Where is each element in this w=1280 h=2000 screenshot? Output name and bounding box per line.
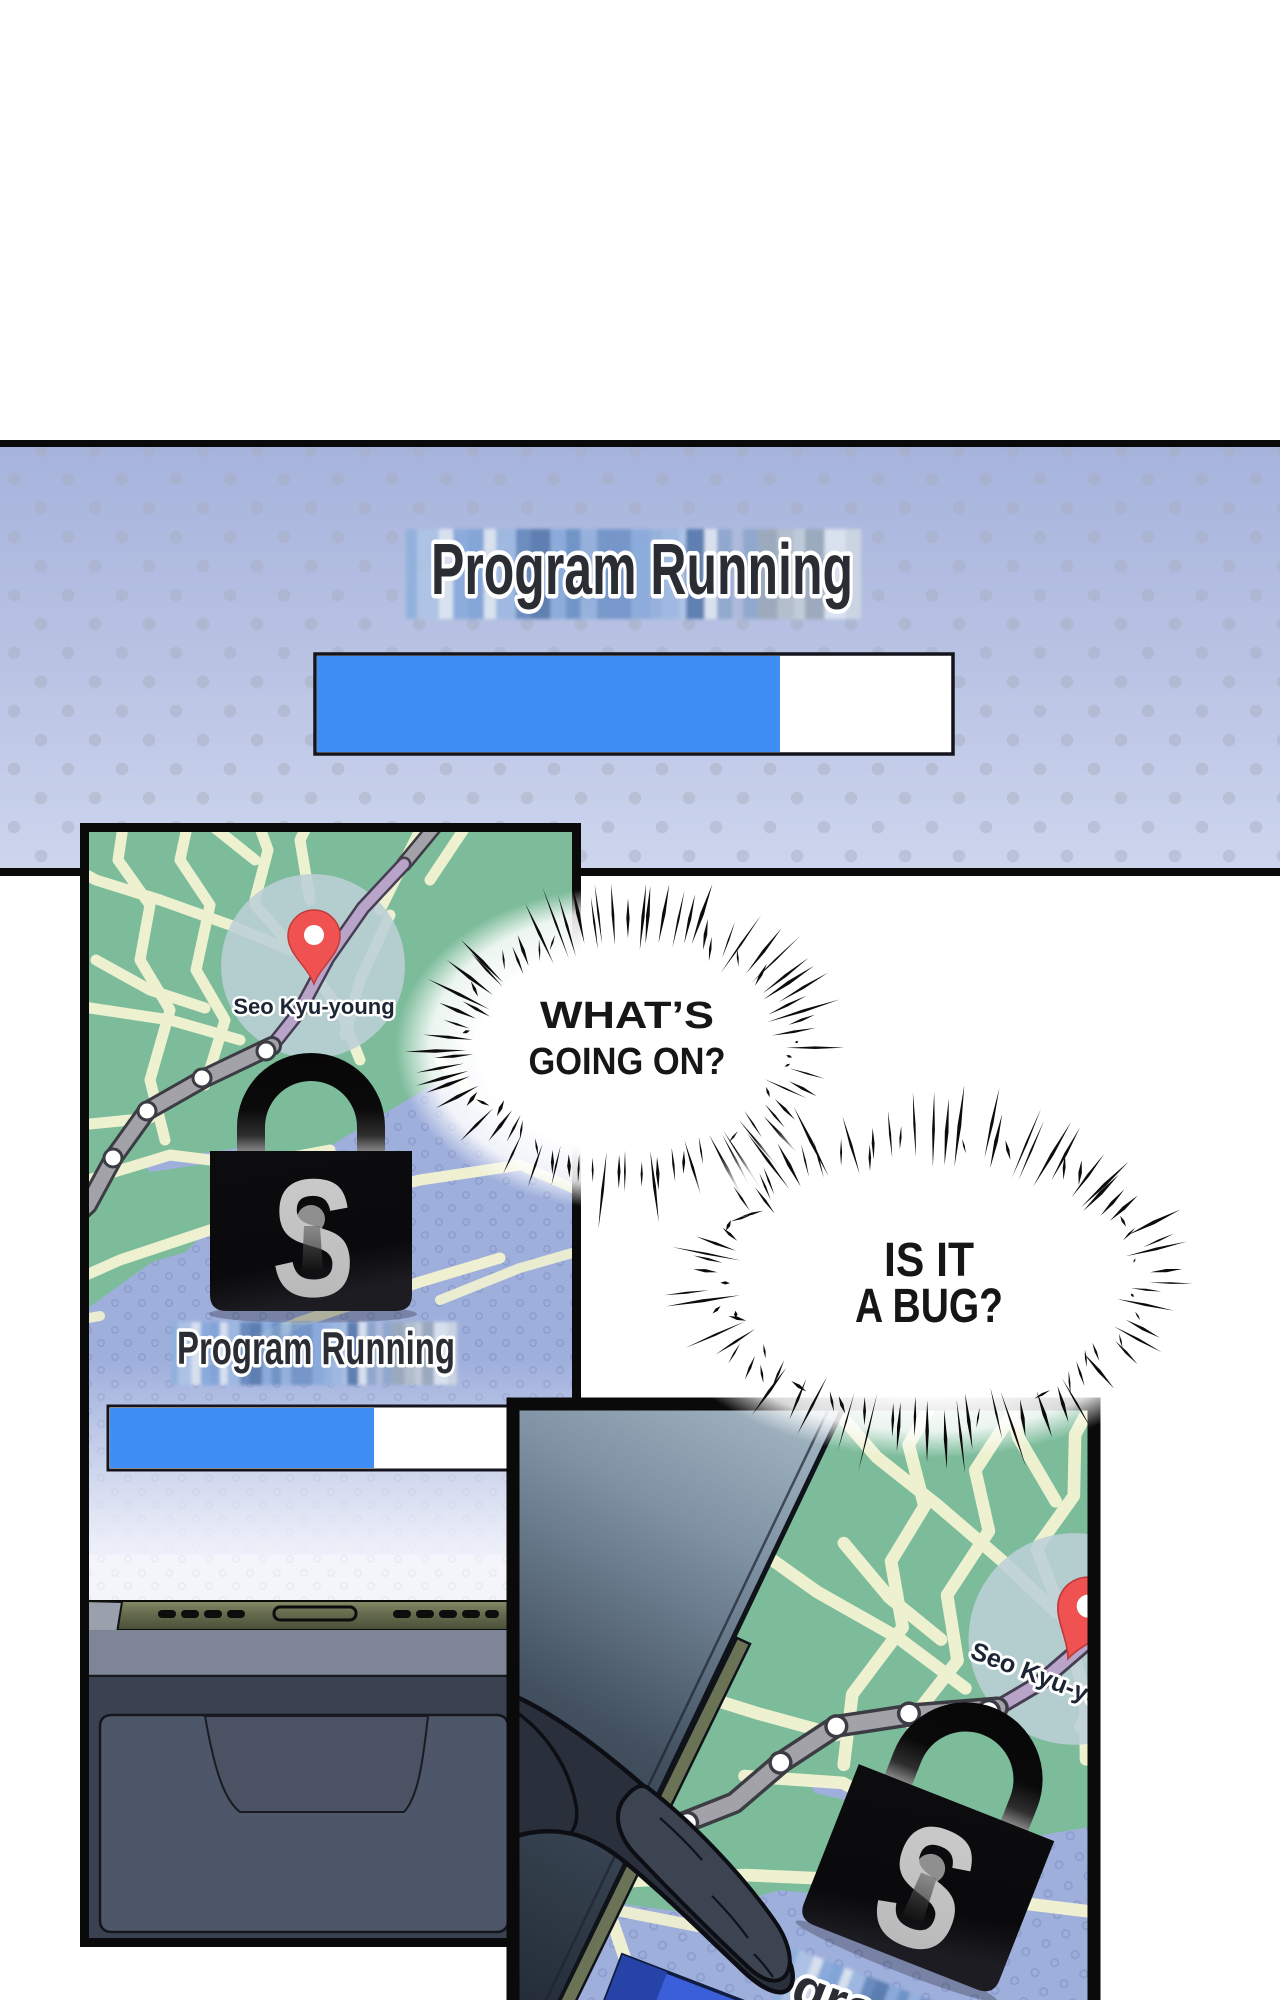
svg-text:GOING ON?: GOING ON? [529, 1041, 726, 1083]
svg-text:A BUG?: A BUG? [855, 1280, 1003, 1333]
svg-text:WHAT’S: WHAT’S [540, 995, 714, 1037]
svg-text:Program Running: Program Running [431, 530, 853, 610]
svg-text:Program Running: Program Running [177, 1322, 455, 1374]
